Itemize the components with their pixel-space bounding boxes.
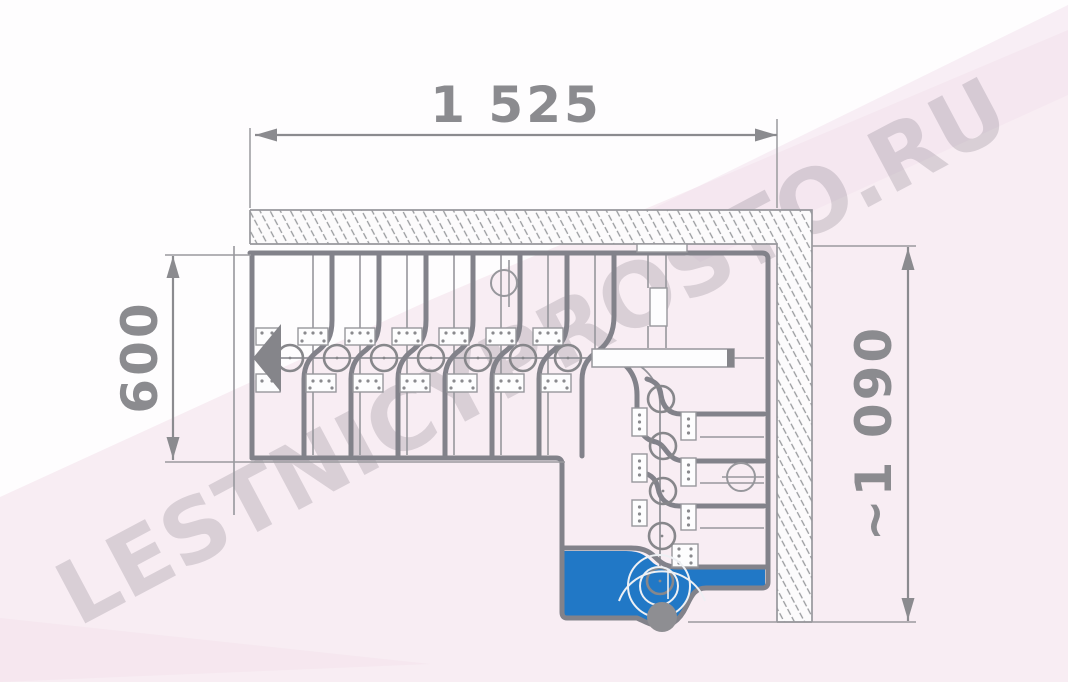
mounting-plate	[672, 544, 698, 567]
bolt-dot	[358, 379, 361, 382]
bolt-dot	[300, 339, 303, 342]
bolt-dot	[319, 379, 322, 382]
bolt-dot	[538, 331, 541, 334]
wall-attachment	[637, 244, 687, 252]
bolt-dot	[444, 331, 447, 334]
bolt-dot	[350, 331, 353, 334]
bolt-dot	[687, 523, 690, 526]
bolt-dot	[366, 379, 369, 382]
module-center-dot	[659, 580, 662, 583]
bolt-dot	[687, 516, 690, 519]
bolt-dot	[463, 339, 466, 342]
bolt-dot	[687, 431, 690, 434]
bolt-dot	[471, 386, 474, 389]
center-post	[647, 602, 677, 632]
bolt-dot	[311, 331, 314, 334]
bolt-dot	[355, 386, 358, 389]
bolt-dot	[460, 379, 463, 382]
bolt-dot	[330, 386, 333, 389]
bolt-dot	[405, 331, 408, 334]
bolt-dot	[562, 379, 565, 382]
bolt-dot	[260, 331, 263, 334]
module-center-dot	[336, 357, 339, 360]
bolt-dot	[319, 331, 322, 334]
upper-member-plate	[650, 288, 667, 326]
plan-drawing-canvas: LESTNICYPROSTO.RU	[0, 0, 1068, 682]
bolt-dot	[677, 554, 680, 557]
bolt-dot	[491, 331, 494, 334]
bolt-dot	[441, 339, 444, 342]
bolt-dot	[689, 561, 692, 564]
bolt-dot	[308, 386, 311, 389]
bolt-dot	[687, 477, 690, 480]
bolt-dot	[424, 386, 427, 389]
bolt-dot	[421, 379, 424, 382]
bolt-dot	[374, 379, 377, 382]
bolt-dot	[535, 339, 538, 342]
bolt-dot	[405, 379, 408, 382]
bolt-dot	[515, 379, 518, 382]
bolt-dot	[687, 463, 690, 466]
bolt-dot	[638, 519, 641, 522]
bolt-dot	[507, 379, 510, 382]
bolt-dot	[543, 386, 546, 389]
module-center-dot	[430, 357, 433, 360]
module-center-dot	[661, 535, 664, 538]
bolt-dot	[366, 331, 369, 334]
bolt-dot	[687, 470, 690, 473]
bolt-dot	[546, 331, 549, 334]
bolt-dot	[402, 386, 405, 389]
bolt-dot	[638, 427, 641, 430]
bolt-dot	[260, 379, 263, 382]
bolt-dot	[554, 331, 557, 334]
bolt-dot	[449, 386, 452, 389]
bolt-dot	[638, 512, 641, 515]
bolt-dot	[416, 339, 419, 342]
bolt-dot	[413, 379, 416, 382]
bolt-dot	[369, 339, 372, 342]
bolt-dot	[507, 331, 510, 334]
module-center-dot	[522, 357, 525, 360]
module-center-dot	[567, 357, 570, 360]
dimension-top-label: 1 525	[430, 76, 602, 134]
top-wall-hatch	[250, 210, 812, 244]
bolt-dot	[689, 554, 692, 557]
module-center-dot	[662, 490, 665, 493]
bolt-dot	[496, 386, 499, 389]
bolt-dot	[452, 331, 455, 334]
bolt-dot	[638, 413, 641, 416]
bolt-dot	[358, 331, 361, 334]
bolt-dot	[638, 505, 641, 508]
bolt-dot	[303, 331, 306, 334]
bolt-dot	[554, 379, 557, 382]
bolt-dot	[677, 547, 680, 550]
staircase-plan-screenshot: LESTNICYPROSTO.RU	[0, 0, 1068, 682]
bolt-dot	[397, 331, 400, 334]
dimension-right-label: ~1 090	[845, 325, 903, 541]
bolt-dot	[510, 339, 513, 342]
bolt-dot	[327, 379, 330, 382]
bolt-dot	[518, 386, 521, 389]
bolt-dot	[468, 379, 471, 382]
dimension-left-label: 600	[111, 300, 169, 413]
bolt-dot	[488, 339, 491, 342]
bolt-dot	[347, 339, 350, 342]
bolt-dot	[638, 466, 641, 469]
bolt-dot	[394, 339, 397, 342]
bolt-dot	[452, 379, 455, 382]
bolt-dot	[546, 379, 549, 382]
bolt-dot	[413, 331, 416, 334]
bolt-dot	[322, 339, 325, 342]
module-center-dot	[383, 357, 386, 360]
module-center-dot	[289, 357, 292, 360]
bolt-dot	[689, 547, 692, 550]
module-center-dot	[660, 398, 663, 401]
bolt-dot	[687, 417, 690, 420]
bolt-dot	[638, 459, 641, 462]
bolt-dot	[460, 331, 463, 334]
bolt-dot	[687, 509, 690, 512]
right-wall-hatch	[777, 244, 812, 622]
bolt-dot	[311, 379, 314, 382]
bolt-dot	[499, 331, 502, 334]
bolt-dot	[687, 424, 690, 427]
bolt-dot	[377, 386, 380, 389]
bolt-dot	[565, 386, 568, 389]
module-center-dot	[477, 357, 480, 360]
bolt-dot	[638, 420, 641, 423]
bolt-dot	[557, 339, 560, 342]
bolt-dot	[638, 473, 641, 476]
module-center-dot	[662, 445, 665, 448]
bolt-dot	[499, 379, 502, 382]
